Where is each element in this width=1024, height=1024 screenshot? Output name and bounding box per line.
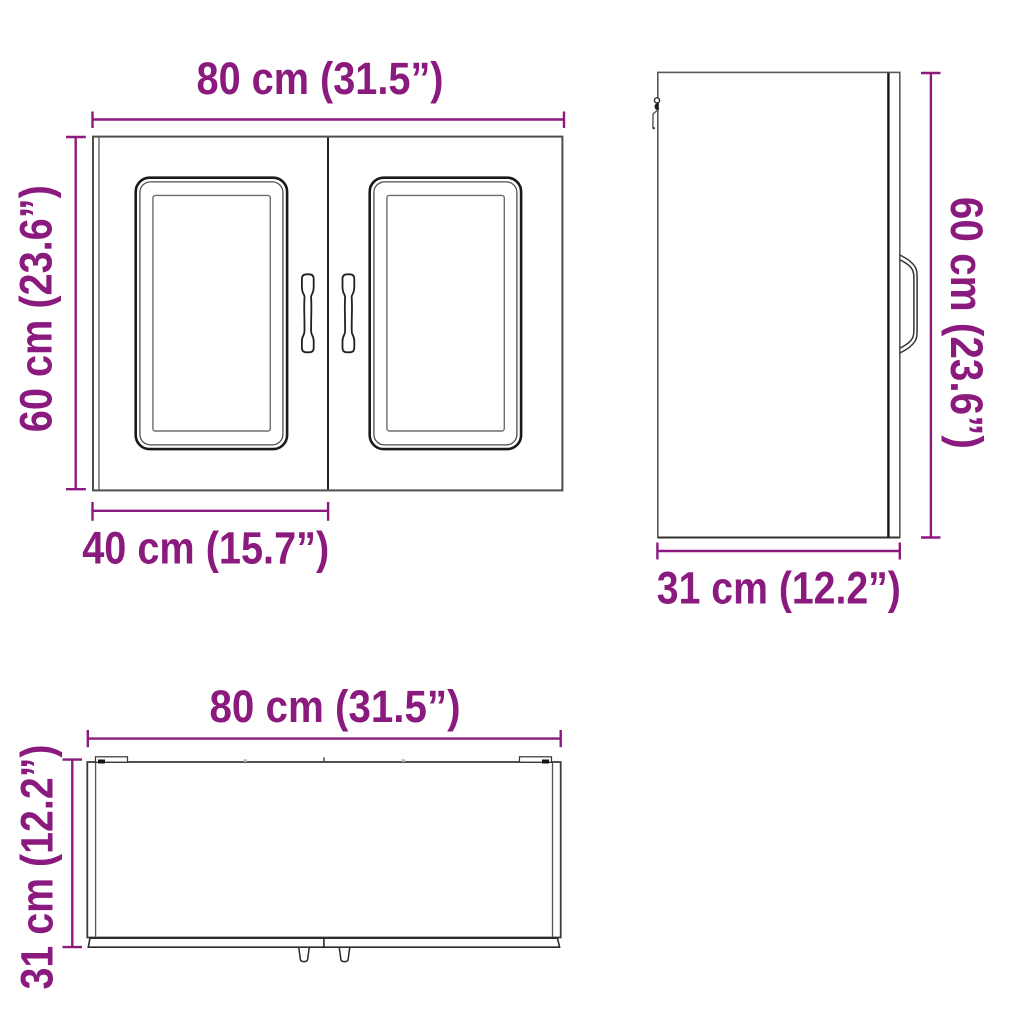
svg-text:60 cm (23.6”): 60 cm (23.6”) (11, 185, 62, 432)
svg-text:31 cm (12.2”): 31 cm (12.2”) (12, 745, 63, 990)
svg-text:31 cm (12.2”): 31 cm (12.2”) (657, 563, 901, 614)
svg-text:40 cm (15.7”): 40 cm (15.7”) (82, 523, 329, 574)
svg-text:60 cm (23.6”): 60 cm (23.6”) (941, 197, 992, 449)
svg-text:80 cm (31.5”): 80 cm (31.5”) (210, 681, 461, 732)
svg-text:80 cm (31.5”): 80 cm (31.5”) (197, 53, 444, 104)
